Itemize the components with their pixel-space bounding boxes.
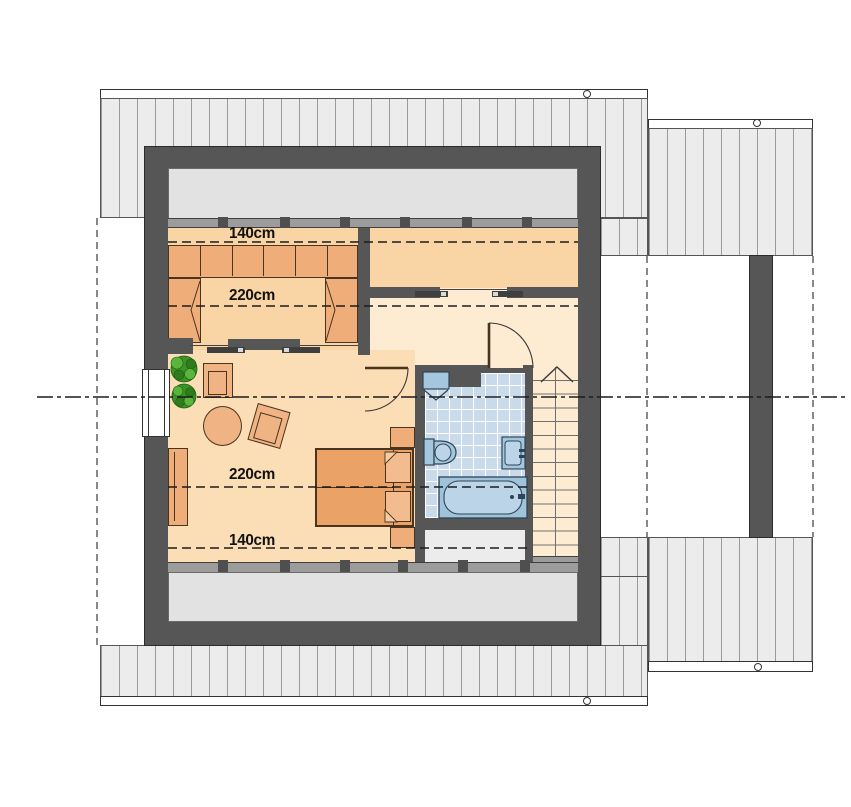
roof-bottom-corner	[600, 537, 648, 646]
sliding-door-handle	[441, 292, 446, 296]
roof-vent-icon	[753, 119, 761, 127]
chimney-icon	[750, 256, 772, 537]
roof-vent-icon	[754, 663, 762, 671]
pillow-icon	[385, 452, 411, 483]
roof-bottom	[100, 645, 648, 697]
opening-lintel	[190, 345, 228, 346]
window-icon	[142, 369, 170, 437]
armchair-seat	[208, 371, 227, 395]
roof-vent-icon	[583, 90, 591, 98]
bed-headboard-cabinet	[390, 427, 415, 448]
roof-right-wing-bottom	[648, 537, 813, 662]
duct-block	[448, 365, 481, 387]
roof-gutter-right-bottom	[648, 661, 813, 672]
wall-bedroom-bottom-left	[145, 338, 193, 354]
wall-bathroom-bottom	[418, 518, 528, 530]
chair-seat	[253, 412, 283, 444]
ceiling-height-label-140-top: 140cm	[225, 225, 278, 243]
low-roof-zone-bottom	[168, 572, 578, 622]
bed-headboard-cabinet	[390, 527, 415, 548]
wall-bathroom-left	[415, 365, 425, 570]
wardrobe-divider	[327, 246, 328, 276]
roof-gutter-bottom	[100, 696, 648, 706]
ceiling-height-label-220-top: 220cm	[225, 287, 278, 305]
roof-eave-line	[600, 576, 648, 577]
wall-bathroom-right	[525, 365, 533, 563]
window-frame-line	[164, 370, 165, 436]
bed-center-line	[315, 487, 394, 488]
wardrobe-divider	[295, 246, 296, 276]
ceiling-height-label-220-bottom: 220cm	[225, 466, 278, 484]
window-frame-line	[148, 370, 149, 436]
sliding-door-handle	[284, 348, 289, 352]
room-bathroom-floor	[425, 373, 525, 518]
roof-right-wing-top	[648, 128, 813, 256]
sideboard-line	[174, 452, 175, 521]
ceiling-height-label-140-bottom: 140cm	[225, 532, 278, 550]
round-table-icon	[203, 406, 242, 446]
wardrobe-icon	[168, 245, 358, 278]
wardrobe-divider	[232, 246, 233, 276]
floor-plan-canvas: 140cm 220cm 220cm 140cm	[0, 0, 851, 807]
stair-center-line	[555, 367, 556, 557]
sideboard-icon	[168, 448, 188, 526]
opening-lintel	[300, 345, 358, 346]
sliding-door-handle	[238, 348, 243, 352]
under-eaves-storage	[418, 530, 528, 563]
armchair-icon	[203, 363, 233, 398]
low-roof-zone-top	[168, 168, 578, 219]
wardrobe-icon	[168, 278, 201, 343]
wardrobe-divider	[200, 246, 201, 276]
sliding-door-handle	[493, 292, 498, 296]
pillow-icon	[385, 491, 411, 522]
wardrobe-icon	[325, 278, 358, 343]
wardrobe-divider	[263, 246, 264, 276]
roof-top-corner	[600, 218, 648, 256]
roof-vent-icon	[583, 697, 591, 705]
opening-lintel	[440, 289, 507, 290]
